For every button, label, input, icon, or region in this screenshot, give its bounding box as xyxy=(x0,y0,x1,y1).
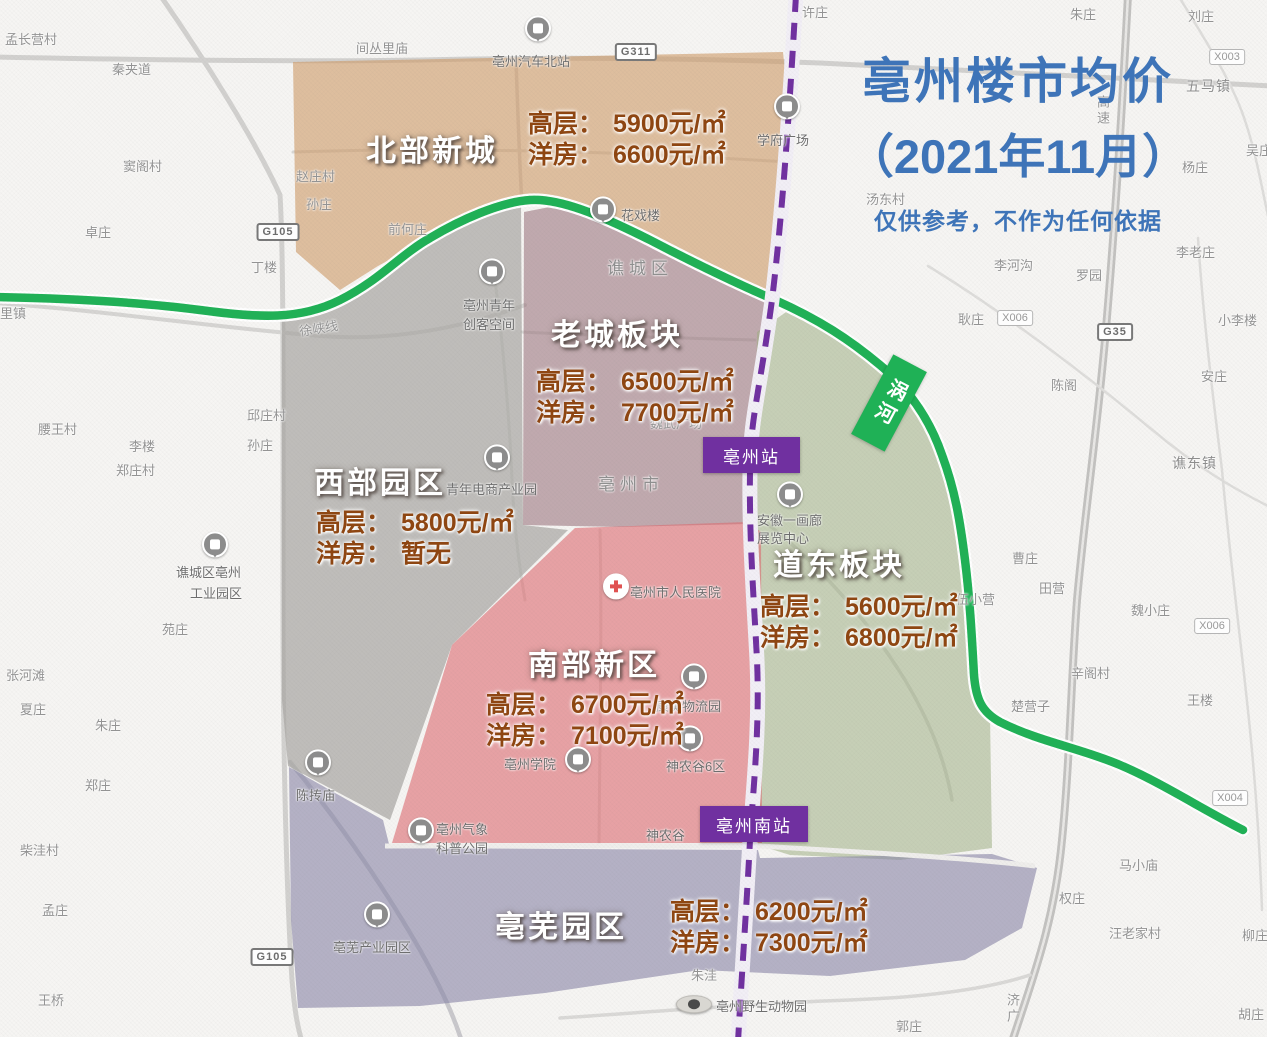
map-label: 卓庄 xyxy=(85,222,111,241)
price-highrise: 高层：5800元/㎡ xyxy=(316,503,514,534)
map-label: 田营 xyxy=(1039,578,1065,597)
map-label: 科普公园 xyxy=(436,838,488,857)
map-label: 魏小庄 xyxy=(1131,600,1170,619)
map-label: 亳州气象 xyxy=(436,819,488,838)
map-label: 王桥 xyxy=(38,990,64,1009)
region-label-daodong: 道东板块 xyxy=(773,540,905,584)
station-badge-bozhou: 亳州站 xyxy=(703,437,800,473)
map-label: 谯东镇 xyxy=(1172,453,1217,473)
map-label: 亳州学院 xyxy=(504,754,556,773)
map-canvas[interactable]: 孟长营村秦夹道窦阁村卓庄里镇许庄朱庄刘庄五马镇吴庄杨庄汤东村李老庄李河沟罗园小李… xyxy=(0,0,1267,1037)
map-label: 安徽一画廊 xyxy=(757,510,822,529)
map-label: 苑庄 xyxy=(162,619,188,638)
prices-south: 高层：6700元/㎡ 洋房：7100元/㎡ xyxy=(486,685,684,747)
weather-park-icon xyxy=(408,817,434,843)
prices-west: 高层：5800元/㎡ 洋房：暂无 xyxy=(316,503,514,565)
region-label-north: 北部新城 xyxy=(366,126,498,170)
map-label: 曹庄 xyxy=(1012,548,1038,567)
map-label: 夏庄 xyxy=(20,699,46,718)
peoples-hospital-icon xyxy=(603,573,629,599)
industrial-park-icon xyxy=(202,531,228,557)
map-label: 里镇 xyxy=(0,303,26,322)
map-label: 吴庄 xyxy=(1246,140,1267,159)
map-label: 前何庄 xyxy=(388,219,427,238)
road-badge-G311: G311 xyxy=(615,43,657,61)
price-highrise: 高层：5900元/㎡ xyxy=(528,104,726,135)
map-label: 柳庄 xyxy=(1242,925,1267,944)
prices-north: 高层：5900元/㎡ 洋房：6600元/㎡ xyxy=(528,104,726,166)
wildlife-park-icon xyxy=(676,995,712,1013)
map-label: 汪老家村 xyxy=(1109,923,1161,942)
map-label: 伍小营 xyxy=(956,589,995,608)
map-label: 赵庄村 xyxy=(296,166,335,185)
disclaimer: 仅供参考，不作为任何依据 xyxy=(840,202,1196,236)
price-highrise: 高层：6500元/㎡ xyxy=(536,362,734,393)
huaxilou-icon xyxy=(590,196,616,222)
map-label: 亳州青年 xyxy=(463,295,515,314)
chentuan-temple-icon xyxy=(305,749,331,775)
map-label: 李楼 xyxy=(129,436,155,455)
map-label: 朱庄 xyxy=(1070,4,1096,23)
prices-bowu: 高层：6200元/㎡ 洋房：7300元/㎡ xyxy=(670,892,868,954)
price-lowrise: 洋房：7700元/㎡ xyxy=(536,393,734,424)
map-label: 亳州汽车北站 xyxy=(492,51,570,70)
road-badge-X004: X004 xyxy=(1212,790,1248,806)
region-label-bowu: 亳芜园区 xyxy=(495,902,627,946)
xuefu-plaza-icon xyxy=(774,93,800,119)
kangmei-logistics-icon xyxy=(681,663,707,689)
map-label: 孙庄 xyxy=(306,194,332,213)
price-lowrise: 洋房：7100元/㎡ xyxy=(486,716,684,747)
ecommerce-park-icon xyxy=(484,444,510,470)
map-label: 李河沟 xyxy=(994,255,1033,274)
map-label: 胡庄 xyxy=(1238,1004,1264,1023)
road-badge-G105: G105 xyxy=(257,223,300,241)
gallery-center-icon xyxy=(777,481,803,507)
road-badge-G105: G105 xyxy=(251,948,294,966)
page-subtitle: （2021年11月） xyxy=(840,133,1196,180)
map-label: 耿庄 xyxy=(958,309,984,328)
map-label: 秦夹道 xyxy=(112,59,151,78)
map-label: 神农谷 xyxy=(646,825,685,844)
maker-space-icon xyxy=(479,258,505,284)
map-label: 权庄 xyxy=(1059,888,1085,907)
map-label: 郑庄 xyxy=(85,775,111,794)
station-badge-bozhou-south: 亳州南站 xyxy=(700,806,808,842)
bus-north-station-icon xyxy=(525,15,551,41)
map-label: 孙庄 xyxy=(247,435,273,454)
map-label: 谯城区亳州 xyxy=(176,562,241,581)
map-label: 陈抟庙 xyxy=(296,785,335,804)
map-label: 郑庄村 xyxy=(116,460,155,479)
price-lowrise: 洋房：6600元/㎡ xyxy=(528,135,726,166)
map-label: 罗园 xyxy=(1076,265,1102,284)
map-label: 小李楼 xyxy=(1218,310,1257,329)
map-label: 朱庄 xyxy=(95,715,121,734)
map-label: 孟庄 xyxy=(42,900,68,919)
prices-daodong: 高层：5600元/㎡ 洋房：6800元/㎡ xyxy=(760,587,958,649)
map-label: 创客空间 xyxy=(463,314,515,333)
map-label: 陈阁 xyxy=(1051,375,1077,394)
map-label: 谯城区 xyxy=(607,254,673,279)
map-label: 孟长营村 xyxy=(5,29,57,48)
map-label: 青年电商产业园 xyxy=(446,479,537,498)
map-label: 学府广场 xyxy=(757,130,809,149)
region-label-south: 南部新区 xyxy=(528,640,660,684)
map-label: 柴洼村 xyxy=(20,840,59,859)
price-highrise: 高层：6700元/㎡ xyxy=(486,685,684,716)
road-badge-G35: G35 xyxy=(1097,323,1133,341)
price-lowrise: 洋房：6800元/㎡ xyxy=(760,618,958,649)
region-label-oldtown: 老城板块 xyxy=(551,310,683,354)
map-label: 工业园区 xyxy=(190,583,242,602)
map-label: 辛阁村 xyxy=(1071,663,1110,682)
bowu-industry-park-icon xyxy=(364,901,390,927)
price-highrise: 高层：6200元/㎡ xyxy=(670,892,868,923)
map-label: 亳芜产业园区 xyxy=(333,937,411,956)
map-label: 张河滩 xyxy=(6,665,45,684)
map-label: 刘庄 xyxy=(1188,6,1214,25)
map-label: 马小庙 xyxy=(1119,855,1158,874)
map-label: 朱洼 xyxy=(691,965,717,984)
map-label: 安庄 xyxy=(1201,366,1227,385)
road-badge-X006: X006 xyxy=(997,310,1033,326)
map-label: 李老庄 xyxy=(1176,242,1215,261)
map-label: 许庄 xyxy=(802,2,828,21)
map-label: 王楼 xyxy=(1187,690,1213,709)
map-label: 花戏楼 xyxy=(621,205,660,224)
title-block: 亳州楼市均价 （2021年11月） 仅供参考，不作为任何依据 xyxy=(840,58,1196,236)
map-label: 丁楼 xyxy=(251,257,277,276)
map-label: 亳州市 xyxy=(598,470,664,495)
road-badge-X003: X003 xyxy=(1209,49,1245,65)
price-lowrise: 洋房：7300元/㎡ xyxy=(670,923,868,954)
map-label: 郭庄 xyxy=(896,1016,922,1035)
prices-oldtown: 高层：6500元/㎡ 洋房：7700元/㎡ xyxy=(536,362,734,424)
map-label: 窦阁村 xyxy=(123,156,162,175)
map-label: 间丛里庙 xyxy=(356,38,408,57)
map-label: 神农谷6区 xyxy=(666,756,725,775)
map-label: 腰王村 xyxy=(38,419,77,438)
map-label: 亳州市人民医院 xyxy=(630,582,721,601)
price-highrise: 高层：5600元/㎡ xyxy=(760,587,958,618)
map-label: 济广 xyxy=(1003,993,1022,1025)
map-label: 邱庄村 xyxy=(247,405,286,424)
road-badge-X006: X006 xyxy=(1194,618,1230,634)
page-title: 亳州楼市均价 xyxy=(840,58,1196,107)
map-label: 亳州野生动物园 xyxy=(716,996,807,1015)
region-label-west: 西部园区 xyxy=(314,458,446,502)
map-label: 楚营子 xyxy=(1011,696,1050,715)
